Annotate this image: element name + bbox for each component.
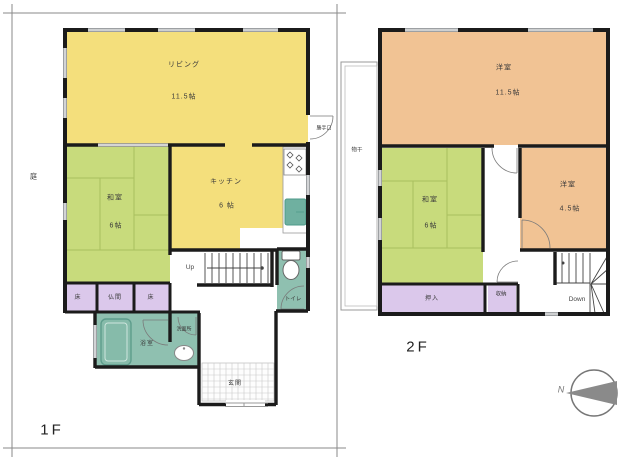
- floor-plan-drawing: [0, 0, 640, 461]
- washitsu-1f-size: 6帖: [110, 223, 123, 230]
- toko-right-label: 床: [147, 295, 154, 301]
- room-fills-1f: [65, 30, 308, 368]
- hall-storage-door-arc: [497, 261, 518, 282]
- genkan-label: 玄関: [228, 381, 242, 387]
- living-room-size: 11.5帖: [171, 94, 196, 101]
- stove-icon: [284, 149, 306, 175]
- kitchen-sink-icon: [285, 199, 306, 225]
- north-label: N: [558, 386, 565, 395]
- stairs-1f: [205, 253, 268, 283]
- western-large-area: [380, 30, 608, 145]
- room-fills-2f: [380, 30, 608, 313]
- drying-area-label: 物干: [351, 148, 362, 154]
- entrance-door: [225, 400, 268, 409]
- western-small-size: 4.5帖: [560, 206, 581, 213]
- storage-area: [488, 285, 516, 313]
- storage-label: 収納: [495, 292, 506, 298]
- kitchen-area-lower: [170, 228, 240, 250]
- kitchen-size: 6 帖: [219, 203, 235, 210]
- washroom-label: 洗面所: [176, 328, 191, 333]
- living-room-label: リビング: [168, 62, 200, 69]
- washitsu-1f-label: 和室: [107, 195, 123, 202]
- western-large-label: 洋室: [496, 65, 512, 72]
- garden-label: 庭: [30, 174, 38, 181]
- compass-icon: [566, 370, 617, 416]
- butsuma-label: 仏間: [108, 295, 122, 301]
- toko-left-label: 床: [74, 295, 81, 301]
- kitchen-label: キッチン: [210, 179, 242, 186]
- bathtub-icon: [101, 319, 131, 365]
- washitsu-2f-area: [380, 148, 483, 285]
- western-large-door-arc: [492, 148, 517, 173]
- living-room-area: [65, 30, 308, 145]
- western-large-size: 11.5帖: [495, 90, 520, 97]
- bath-label: 浴室: [140, 341, 154, 347]
- toilet-label: トイレ: [285, 297, 302, 303]
- oshiire-label: 押入: [425, 296, 439, 302]
- washitsu-2f-size: 6帖: [425, 223, 438, 230]
- washitsu-1f-area: [65, 145, 170, 283]
- stairs-up-label: Up: [186, 265, 194, 272]
- western-small-area: [520, 148, 608, 250]
- western-small-label: 洋室: [560, 182, 576, 189]
- floor2-title: 2F: [406, 340, 430, 355]
- balcony-outline: [341, 62, 377, 310]
- toilet-icon: [282, 251, 300, 280]
- back-door-label: 勝手口: [316, 127, 331, 132]
- stairs-down-label: Down: [569, 297, 586, 304]
- floor-plan: リビング 11.5帖 キッチン 6 帖 和室 6帖 床 仏間 床 浴室 洗面所 …: [0, 0, 640, 461]
- stairs-2f: [555, 253, 608, 313]
- floor1-title: 1F: [40, 423, 64, 438]
- washitsu-2f-label: 和室: [422, 197, 438, 204]
- washbasin-icon: [175, 346, 194, 361]
